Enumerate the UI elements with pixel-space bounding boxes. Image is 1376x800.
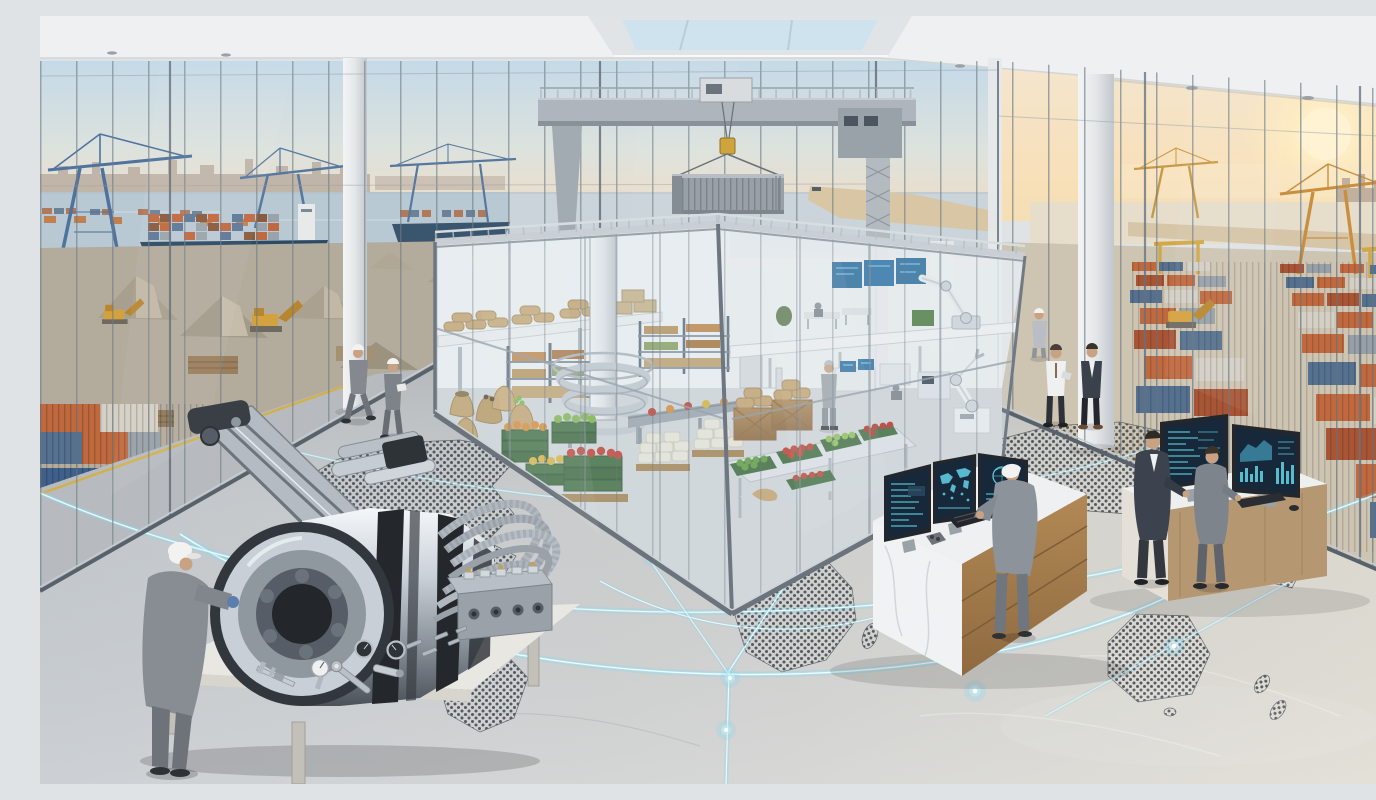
cap-brim [187,553,201,559]
crane-housing [838,108,902,158]
pressure-gauge-2 [388,642,405,659]
bench-shadow [140,745,540,777]
hook-block [720,138,735,154]
skylight-glass [622,20,878,50]
industrial-logistics-scene: Global logistics hub overlooking a conta… [40,16,1376,784]
floor-sheen [1000,686,1376,766]
blue-glove [227,596,239,608]
housing-window-2 [864,116,878,126]
operator-body [992,480,1037,576]
housing-window-1 [844,116,858,126]
pressure-gauge-1 [356,641,373,658]
mouse [1289,505,1299,511]
hanging-container [672,174,784,214]
engine-front-disc [210,522,394,706]
trolley-detail [706,84,722,94]
